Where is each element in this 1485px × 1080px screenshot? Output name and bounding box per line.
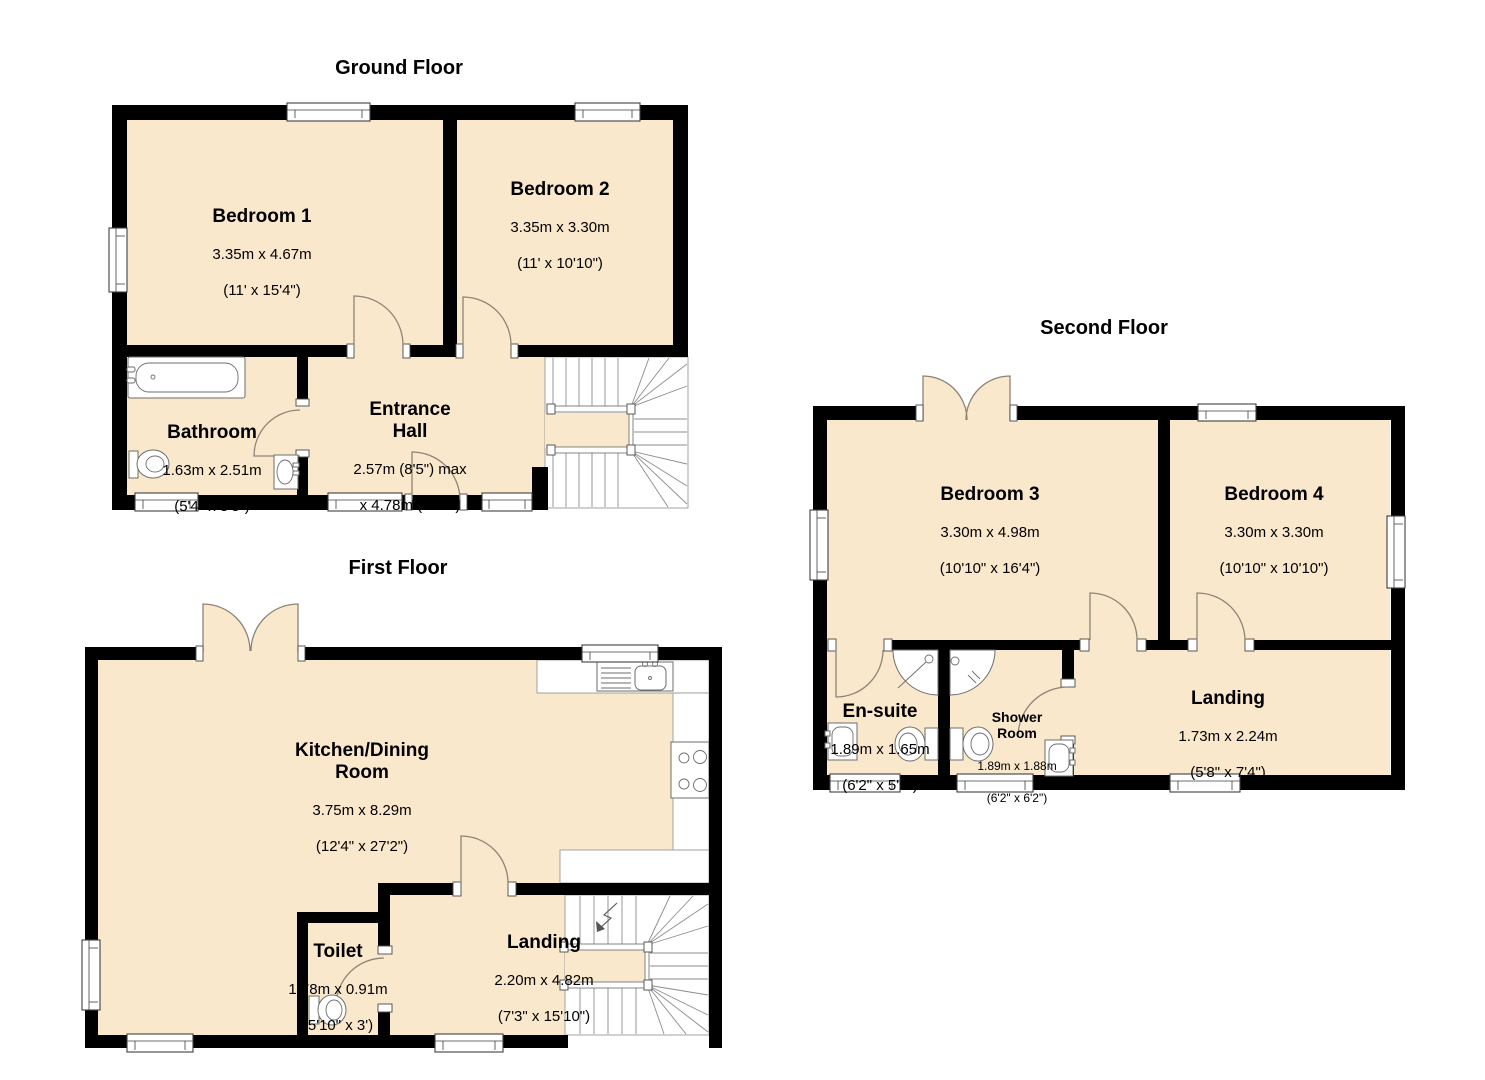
window [435,1034,503,1052]
room-label-bathroom: Bathroom 1.63m x 2.51m (5'4" x 8'3") [162,404,261,534]
room-name: Entrance Hall [353,399,466,443]
room-dim-metric: 3.30m x 3.30m [1220,524,1329,542]
room-name: Kitchen/Dining Room [295,740,429,784]
room-dim-metric: 2.20m x 4.82m [494,972,593,990]
window [127,1034,193,1052]
room-dim-imperial: (12'4" x 27'2") [295,838,429,856]
room-dim-imperial: (5'4" x 8'3") [162,498,261,516]
room-label-landing-first: Landing 2.20m x 4.82m (7'3" x 15'10") [494,914,593,1044]
first-floor-title: First Floor [349,557,448,580]
window [482,493,532,511]
room-dim-metric: 1.78m x 0.91m [288,981,387,999]
room-name: Landing [1178,688,1277,710]
room-dim-metric: 1.73m x 2.24m [1178,728,1277,746]
room-label-bedroom4: Bedroom 4 3.30m x 3.30m (10'10" x 10'10"… [1220,466,1329,596]
room-dim-imperial: (7'3" x 15'10") [494,1008,593,1026]
room-label-landing-second: Landing 1.73m x 2.24m (5'8" x 7'4") [1178,670,1277,800]
window [287,103,370,121]
room-name: Landing [494,932,593,954]
room-label-bedroom2: Bedroom 2 3.35m x 3.30m (11' x 10'10") [510,161,609,291]
room-label-toilet: Toilet 1.78m x 0.91m (5'10" x 3') [288,923,387,1053]
room-name: Bathroom [162,422,261,444]
room-dim-metric: 1.63m x 2.51m [162,462,261,480]
second-floor-title: Second Floor [1040,317,1168,340]
room-label-bedroom1: Bedroom 1 3.35m x 4.67m (11' x 15'4") [212,188,311,318]
room-label-shower-room: Shower Room 1.89m x 1.88m (6'2" x 6'2") [977,691,1056,823]
kitchen-sink-icon [597,662,673,692]
room-dim-metric: 1.89m x 1.65m [830,741,929,759]
hob-icon [671,742,709,798]
floorplan-page: { "document": { "type": "property-floorp… [0,0,1485,1080]
room-name: En-suite [830,701,929,723]
sink-icon-ground [274,455,299,489]
room-name: Bedroom 3 [940,484,1041,506]
room-label-bedroom3: Bedroom 3 3.30m x 4.98m (10'10" x 16'4") [940,466,1041,596]
room-dim-imperial: (5'10" x 3') [288,1017,387,1035]
room-dim-imperial: (10'10" x 16'4") [940,560,1041,578]
ground-floor-title: Ground Floor [335,57,463,80]
double-door-second-floor [923,376,1010,421]
window [575,103,640,121]
room-name: Bedroom 4 [1220,484,1329,506]
window [810,510,828,580]
room-dim-imperial: (11' x 15'4") [212,282,311,300]
room-name: Bedroom 1 [212,206,311,228]
room-dim-metric: 3.35m x 3.30m [510,219,609,237]
room-dim-metric: 3.35m x 4.67m [212,246,311,264]
room-dim-metric: 2.57m (8'5") max [353,461,466,479]
room-dim-imperial: (6'2" x 6'2") [977,791,1056,805]
room-dim-imperial: (5'8" x 7'4") [1178,764,1277,782]
room-name: Toilet [288,941,387,963]
room-dim-imperial: (10'10" x 10'10") [1220,560,1329,578]
room-label-kitchen-dining: Kitchen/Dining Room 3.75m x 8.29m (12'4"… [295,722,429,874]
room-dim-imperial: (11' x 10'10") [510,255,609,273]
window [1198,404,1256,421]
bathtub-icon [127,357,245,398]
window [1387,516,1405,588]
staircase-ground [545,357,688,508]
window [582,645,658,662]
room-dim-metric: 3.30m x 4.98m [940,524,1041,542]
room-name: Bedroom 2 [510,179,609,201]
room-dim-metric: 1.89m x 1.88m [977,759,1056,773]
room-label-entrance-hall: Entrance Hall 2.57m (8'5") max x 4.78m (… [353,381,466,533]
room-dim-imperial: (6'2" x 5'5") [830,777,929,795]
window [82,940,100,1010]
room-name: Shower Room [977,709,1056,741]
room-dim-imperial: x 4.78m (15'8") [353,497,466,515]
room-label-ensuite: En-suite 1.89m x 1.65m (6'2" x 5'5") [830,683,929,813]
window [109,228,127,292]
room-dim-metric: 3.75m x 8.29m [295,802,429,820]
double-door-first-floor [203,604,298,660]
